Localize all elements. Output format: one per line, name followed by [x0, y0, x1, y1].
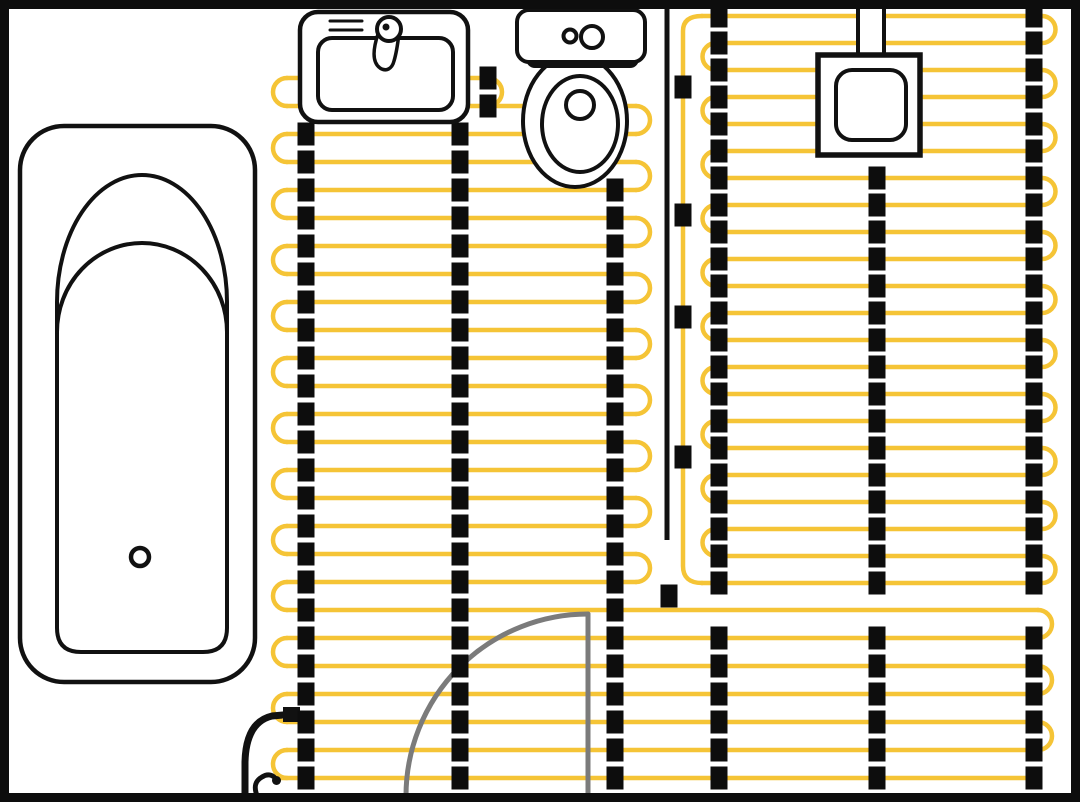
- cable-clip: [869, 329, 886, 352]
- cable-clip: [452, 123, 469, 146]
- junction-box: [818, 2, 920, 155]
- cable-clip: [711, 32, 728, 55]
- cable-clip: [869, 683, 886, 706]
- cable-clip: [869, 545, 886, 568]
- floor-plan-page: [0, 0, 1080, 802]
- cable-clip: [298, 767, 315, 790]
- cable-clip: [675, 446, 692, 469]
- cable-clip: [869, 167, 886, 190]
- cable-clip: [452, 515, 469, 538]
- cable-clip: [1026, 113, 1043, 136]
- cable-clip: [869, 518, 886, 541]
- cable-clip: [607, 319, 624, 342]
- cable-clip: [607, 543, 624, 566]
- cable-clip: [298, 627, 315, 650]
- cable-clip: [452, 487, 469, 510]
- cable-clip: [1026, 410, 1043, 433]
- cable-clip: [298, 543, 315, 566]
- cable-clip: [452, 431, 469, 454]
- cable-clip: [1026, 545, 1043, 568]
- cable-clip: [607, 739, 624, 762]
- cable-clip: [607, 627, 624, 650]
- cable-clip: [711, 167, 728, 190]
- cable-clip: [452, 599, 469, 622]
- cable-clip: [607, 571, 624, 594]
- cable-clip: [452, 319, 469, 342]
- cable-clip: [607, 459, 624, 482]
- cable-clip: [869, 275, 886, 298]
- cable-clip: [452, 739, 469, 762]
- cable-clip: [869, 739, 886, 762]
- cable-clip: [869, 464, 886, 487]
- cable-clip: [607, 711, 624, 734]
- heating-cable-runs: [273, 16, 1056, 778]
- cable-clip: [298, 151, 315, 174]
- door-swing: [406, 614, 588, 796]
- cable-clip: [298, 179, 315, 202]
- cable-clip: [711, 59, 728, 82]
- cable-clip: [452, 207, 469, 230]
- cable-clip: [869, 248, 886, 271]
- cable-clip: [607, 683, 624, 706]
- cable-clip: [1026, 518, 1043, 541]
- cable-clip: [711, 140, 728, 163]
- cable-clip: [711, 655, 728, 678]
- cable-clip: [452, 655, 469, 678]
- cable-clip: [1026, 329, 1043, 352]
- cable-clip: [1026, 572, 1043, 595]
- cable-clip: [1026, 739, 1043, 762]
- cable-clip: [452, 767, 469, 790]
- cable-clip: [711, 572, 728, 595]
- cable-clip: [607, 515, 624, 538]
- cable-clip: [711, 739, 728, 762]
- cable-clip: [607, 599, 624, 622]
- cable-clip: [1026, 383, 1043, 406]
- cable-clip: [1026, 275, 1043, 298]
- cable-clip: [711, 356, 728, 379]
- cable-clip: [1026, 167, 1043, 190]
- sink: [300, 12, 468, 122]
- cable-clip: [298, 375, 315, 398]
- cable-clip: [711, 627, 728, 650]
- cable-clip: [298, 487, 315, 510]
- cable-clip: [607, 431, 624, 454]
- cable-clip: [1026, 32, 1043, 55]
- cable-clip: [711, 113, 728, 136]
- cable-clip: [869, 572, 886, 595]
- cable-clip: [711, 383, 728, 406]
- cable-clip: [298, 571, 315, 594]
- cable-clip: [869, 767, 886, 790]
- cable-clip: [607, 263, 624, 286]
- cable-clip: [661, 585, 678, 608]
- cable-clip: [1026, 711, 1043, 734]
- cable-clip: [298, 459, 315, 482]
- cable-clip: [607, 655, 624, 678]
- cable-clip: [711, 711, 728, 734]
- cable-clip: [711, 767, 728, 790]
- cable-clip: [452, 403, 469, 426]
- cable-clip: [711, 248, 728, 271]
- cable-clip: [711, 518, 728, 541]
- cable-clip: [711, 410, 728, 433]
- cable-clip: [452, 179, 469, 202]
- cable-clip: [711, 491, 728, 514]
- cable-clip: [711, 437, 728, 460]
- cable-clip: [711, 464, 728, 487]
- cable-clip: [480, 67, 497, 90]
- cable-clip: [452, 235, 469, 258]
- cable-clip: [869, 491, 886, 514]
- cable-clip: [298, 599, 315, 622]
- cable-clip: [452, 347, 469, 370]
- cable-clip: [298, 403, 315, 426]
- cable-clip: [869, 627, 886, 650]
- cable-clip: [711, 221, 728, 244]
- cable-clip: [1026, 464, 1043, 487]
- cable-clip: [607, 235, 624, 258]
- cable-clip: [869, 194, 886, 217]
- cable-clip: [298, 431, 315, 454]
- cable-clip: [298, 123, 315, 146]
- cable-clip: [711, 302, 728, 325]
- cable-clip: [452, 543, 469, 566]
- cable-clip: [1026, 491, 1043, 514]
- cable-clip: [869, 302, 886, 325]
- cable-clip: [1026, 140, 1043, 163]
- cable-clip: [452, 291, 469, 314]
- cable-clip: [1026, 59, 1043, 82]
- cable-clip: [298, 319, 315, 342]
- cable-clip: [869, 410, 886, 433]
- cable-clip: [1026, 767, 1043, 790]
- cable-clip: [869, 383, 886, 406]
- cable-clip: [1026, 356, 1043, 379]
- cable-clip: [452, 711, 469, 734]
- cable-clip: [452, 627, 469, 650]
- cable-clip: [1026, 655, 1043, 678]
- cable-clip: [452, 683, 469, 706]
- cable-clip: [711, 683, 728, 706]
- cable-clip: [607, 291, 624, 314]
- cable-clip: [607, 347, 624, 370]
- cable-clip: [607, 207, 624, 230]
- cable-clip: [1026, 437, 1043, 460]
- cable-clip: [607, 375, 624, 398]
- cable-clip: [452, 459, 469, 482]
- cable-clip: [298, 207, 315, 230]
- cable-clip: [298, 655, 315, 678]
- cable-clip: [1026, 683, 1043, 706]
- cable-clip: [1026, 221, 1043, 244]
- cable-clip: [480, 95, 497, 118]
- cable-clip: [298, 291, 315, 314]
- cable-clip: [298, 263, 315, 286]
- cable-clip: [452, 263, 469, 286]
- cable-clip: [1026, 194, 1043, 217]
- cable-clip: [607, 767, 624, 790]
- cable-clip: [711, 86, 728, 109]
- cable-clip: [607, 179, 624, 202]
- cable-clip: [869, 437, 886, 460]
- cable-clip: [1026, 248, 1043, 271]
- cable-clip: [607, 403, 624, 426]
- cable-clip: [1026, 302, 1043, 325]
- cable-clip: [452, 375, 469, 398]
- power-and-sensor-leads: [245, 707, 300, 798]
- cable-clip: [869, 711, 886, 734]
- cable-clip: [711, 194, 728, 217]
- cable-clip: [452, 571, 469, 594]
- cable-clip: [298, 711, 315, 734]
- cable-clip: [1026, 627, 1043, 650]
- cable-clip: [675, 204, 692, 227]
- cable-clip: [869, 655, 886, 678]
- cable-clip: [607, 487, 624, 510]
- cable-clip: [452, 151, 469, 174]
- cable-clip: [298, 739, 315, 762]
- underfloor-heating-plan: [0, 0, 1080, 802]
- cable-clip: [675, 76, 692, 99]
- bathtub: [20, 126, 255, 682]
- cable-clip: [1026, 86, 1043, 109]
- cable-clip: [298, 235, 315, 258]
- cable-clip: [675, 306, 692, 329]
- cable-clip: [869, 356, 886, 379]
- cable-clip: [869, 221, 886, 244]
- cable-clip: [298, 515, 315, 538]
- cable-clip: [298, 683, 315, 706]
- cable-clip: [711, 545, 728, 568]
- cable-clip: [298, 347, 315, 370]
- cable-clip: [711, 275, 728, 298]
- cable-clip: [711, 329, 728, 352]
